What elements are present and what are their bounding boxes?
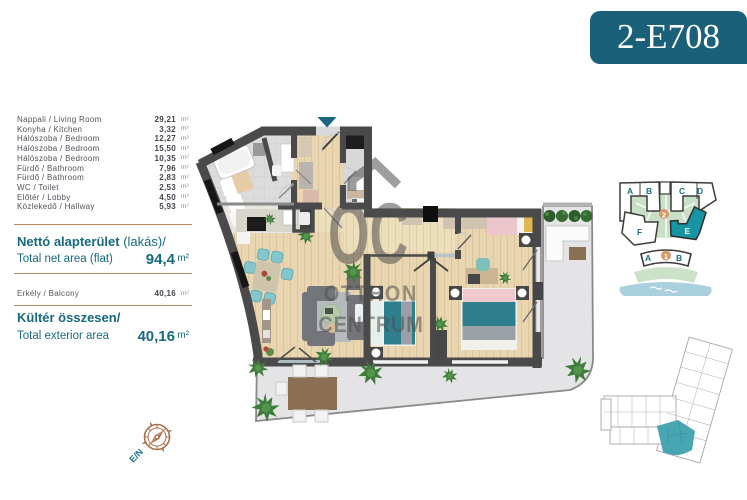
svg-text:CENTRUM: CENTRUM bbox=[318, 313, 423, 337]
svg-text:E/N: E/N bbox=[127, 447, 145, 465]
svg-text:E: E bbox=[685, 226, 691, 236]
svg-text:F: F bbox=[637, 227, 642, 237]
svg-text:2: 2 bbox=[662, 210, 666, 219]
svg-text:A: A bbox=[645, 253, 651, 263]
svg-text:1: 1 bbox=[664, 252, 668, 261]
svg-text:D: D bbox=[697, 186, 703, 196]
svg-text:OTTHON: OTTHON bbox=[324, 282, 418, 306]
svg-text:A: A bbox=[627, 186, 633, 196]
svg-text:B: B bbox=[676, 253, 682, 263]
svg-text:C: C bbox=[679, 186, 685, 196]
svg-text:B: B bbox=[646, 186, 652, 196]
svg-text:OC: OC bbox=[328, 186, 408, 282]
